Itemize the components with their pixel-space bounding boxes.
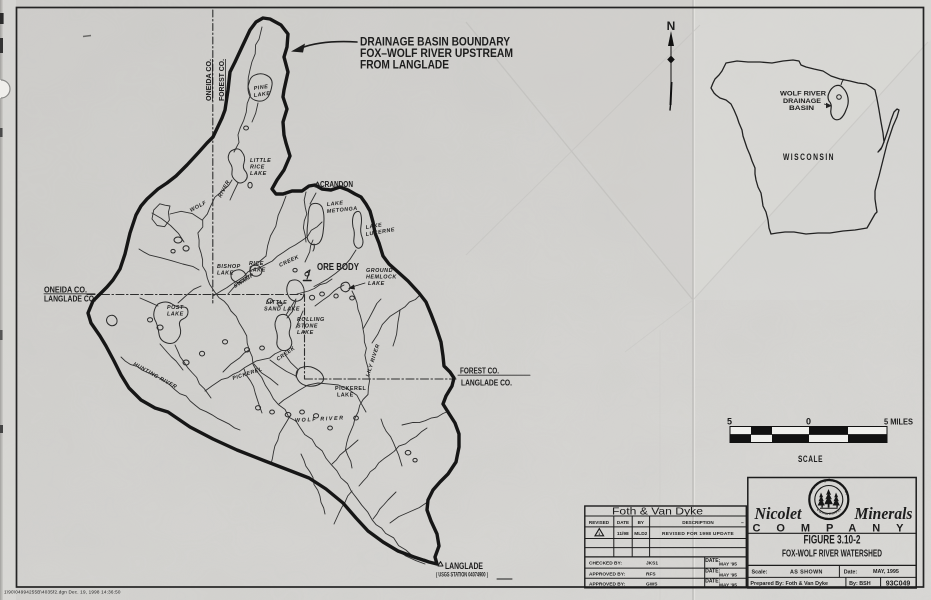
svg-text:LANGLADE: LANGLADE	[445, 561, 483, 571]
svg-text:BISHOP: BISHOP	[217, 264, 241, 270]
svg-text:AS SHOWN: AS SHOWN	[790, 570, 823, 576]
svg-text:–: –	[741, 521, 744, 527]
svg-text:Scale:: Scale:	[752, 570, 768, 576]
svg-text:BASIN: BASIN	[789, 105, 814, 112]
svg-text:LITTLE: LITTLE	[250, 158, 271, 164]
svg-text:LAKE: LAKE	[368, 281, 385, 287]
svg-text:WOLF RIVER: WOLF RIVER	[780, 91, 826, 98]
svg-text:DESCRIPTION: DESCRIPTION	[682, 520, 714, 525]
svg-text:LAKE: LAKE	[250, 171, 267, 177]
svg-text:LAKE: LAKE	[217, 271, 234, 277]
svg-text:ONEIDA CO.: ONEIDA CO.	[204, 59, 213, 101]
svg-text:LITTLE: LITTLE	[266, 300, 287, 306]
svg-text:Foth & Van Dyke: Foth & Van Dyke	[612, 506, 703, 518]
svg-text:FROM LANGLADE: FROM LANGLADE	[360, 58, 449, 72]
svg-text:CHECKED BY:: CHECKED BY:	[589, 561, 622, 567]
svg-text:ROLLING: ROLLING	[297, 317, 325, 323]
svg-text:FOREST CO.: FOREST CO.	[460, 367, 499, 376]
svg-text:5 MILES: 5 MILES	[884, 418, 914, 427]
svg-text:PICKEREL: PICKEREL	[335, 386, 366, 392]
svg-text:GROUND: GROUND	[366, 268, 393, 274]
svg-text:Minerals: Minerals	[854, 504, 913, 523]
svg-text:MAY, 1995: MAY, 1995	[873, 569, 899, 575]
svg-text:ORE BODY: ORE BODY	[317, 261, 359, 273]
svg-text:HEMLOCK: HEMLOCK	[366, 275, 397, 281]
svg-text:By: BSH: By: BSH	[849, 581, 871, 587]
svg-text:Nicolet: Nicolet	[754, 504, 802, 523]
svg-text:MAY '95: MAY '95	[719, 582, 737, 588]
svg-text:LAKE: LAKE	[337, 393, 354, 399]
svg-text:REVISED: REVISED	[589, 520, 610, 525]
svg-text:1\90\04994255B\4035f2.dgn Dec: 1\90\04994255B\4035f2.dgn Dec. 19, 1998 …	[4, 590, 121, 595]
svg-text:MAY '95: MAY '95	[719, 572, 737, 578]
svg-text:LAKE: LAKE	[167, 312, 184, 318]
svg-text:93C049: 93C049	[886, 581, 911, 588]
svg-text:COMPANY: COMPANY	[753, 523, 912, 535]
svg-text:5: 5	[727, 417, 732, 427]
svg-text:GWS: GWS	[646, 581, 658, 587]
svg-text:FOREST CO.: FOREST CO.	[217, 59, 226, 101]
svg-text:RFS: RFS	[646, 571, 656, 577]
svg-text:( USGS STATION 04074900 ): ( USGS STATION 04074900 )	[436, 572, 488, 579]
svg-text:DRAINAGE: DRAINAGE	[783, 98, 821, 105]
svg-text:11/98: 11/98	[617, 531, 629, 537]
svg-text:SCALE: SCALE	[798, 454, 823, 465]
svg-text:LANGLADE CO.: LANGLADE CO.	[461, 379, 512, 388]
svg-text:LAKE: LAKE	[297, 330, 314, 336]
svg-text:N: N	[667, 19, 676, 33]
svg-text:Date:: Date:	[844, 570, 858, 576]
svg-text:Prepared By: Foth & Van Dyke: Prepared By: Foth & Van Dyke	[750, 581, 828, 587]
svg-text:ONEIDA CO.: ONEIDA CO.	[44, 286, 87, 295]
svg-text:APPROVED BY:: APPROVED BY:	[589, 571, 626, 577]
svg-text:MAY '95: MAY '95	[719, 562, 737, 568]
svg-text:BY: BY	[638, 520, 644, 525]
svg-text:1: 1	[598, 532, 600, 536]
svg-text:LANGLADE CO.: LANGLADE CO.	[44, 295, 96, 304]
svg-text:0: 0	[806, 417, 811, 427]
svg-text:FIGURE 3.10-2: FIGURE 3.10-2	[804, 535, 861, 547]
svg-text:REVISED FOR 1998 UPDATE: REVISED FOR 1998 UPDATE	[662, 531, 735, 537]
svg-text:RICE: RICE	[249, 261, 264, 267]
svg-text:JKS1: JKS1	[646, 561, 658, 567]
svg-text:APPROVED BY:: APPROVED BY:	[589, 581, 626, 587]
svg-text:FOX-WOLF RIVER WATERSHED: FOX-WOLF RIVER WATERSHED	[782, 549, 882, 560]
svg-text:POST: POST	[167, 305, 184, 311]
svg-text:RICE: RICE	[250, 165, 265, 171]
svg-text:MLD2: MLD2	[634, 531, 647, 537]
svg-text:STONE: STONE	[297, 324, 318, 330]
svg-text:DATE: DATE	[617, 520, 629, 525]
svg-text:SAND LAKE: SAND LAKE	[264, 307, 300, 313]
svg-text:WISCONSIN: WISCONSIN	[783, 152, 835, 162]
svg-text:CRANDON: CRANDON	[320, 180, 353, 189]
